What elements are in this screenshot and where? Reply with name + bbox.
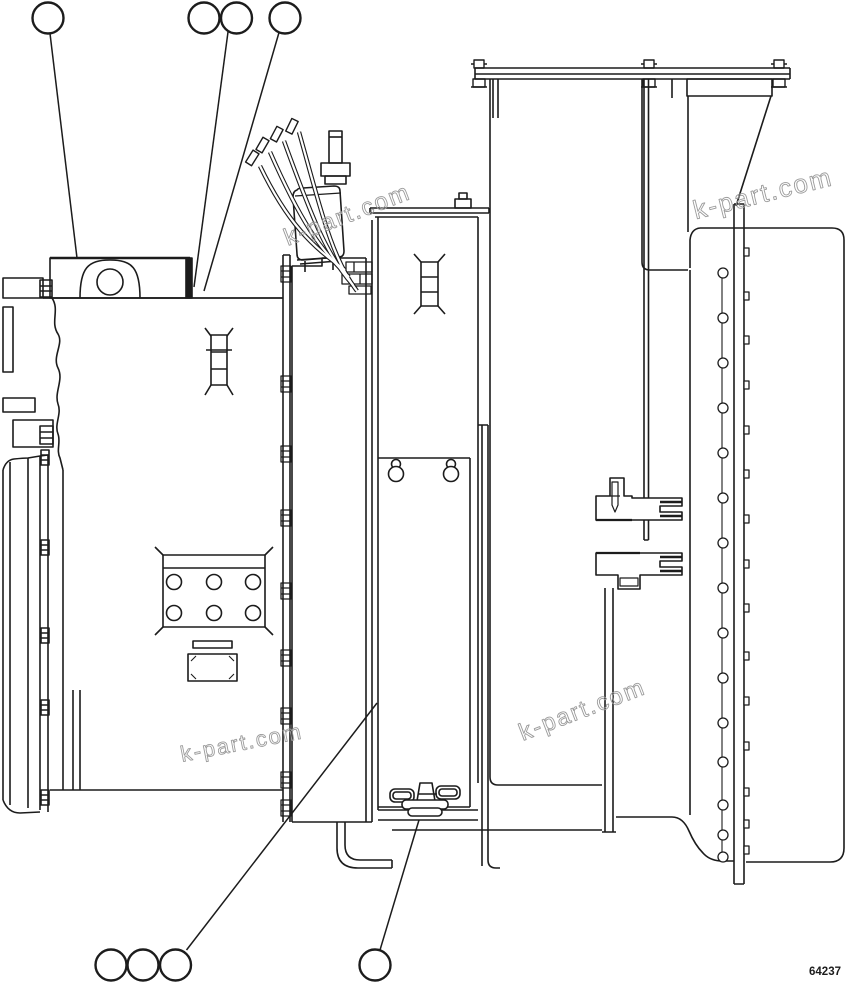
callout-balloon[interactable] — [189, 3, 220, 34]
drain-valve — [390, 783, 460, 816]
leader-line — [194, 32, 228, 287]
part-number: 64237 — [809, 966, 841, 978]
parts-diagram: k-part.com k-part.com k-part.com k-part.… — [0, 0, 845, 984]
center-panel-a — [292, 220, 392, 868]
watermarks: k-part.com k-part.com k-part.com k-part.… — [178, 161, 835, 766]
center-panel-b — [370, 193, 500, 868]
lifting-hole — [97, 269, 123, 295]
callout-balloon[interactable] — [160, 950, 191, 981]
strap-bracket — [205, 328, 233, 395]
rear-panel — [392, 79, 734, 861]
latch-bracket-upper — [596, 478, 682, 520]
callout-balloon[interactable] — [96, 950, 127, 981]
bolt-strip — [718, 204, 749, 884]
lifting-bracket — [50, 258, 192, 298]
top-mounting-rail — [471, 60, 790, 118]
latch-bracket-lower — [596, 553, 682, 589]
watermark: k-part.com — [690, 161, 836, 225]
callout-balloon[interactable] — [33, 3, 64, 34]
fan-shroud — [690, 204, 844, 884]
left-cooler-assembly — [43, 298, 283, 790]
keyhole-fasteners — [389, 460, 459, 482]
leader-line — [380, 820, 419, 950]
callout-balloon[interactable] — [128, 950, 159, 981]
watermark: k-part.com — [515, 673, 649, 746]
parts-diagram-canvas: k-part.com k-part.com k-part.com k-part.… — [0, 0, 845, 984]
callout-balloon[interactable] — [360, 950, 391, 981]
support-rod — [644, 79, 649, 540]
leader-line — [50, 34, 77, 259]
watermark: k-part.com — [178, 719, 304, 767]
left-side-brackets — [3, 278, 53, 813]
callout-balloon[interactable] — [270, 3, 301, 34]
strap-bracket-b — [414, 254, 445, 314]
mounting-foot — [337, 822, 392, 868]
callout-balloon[interactable] — [221, 3, 252, 34]
nameplate — [188, 641, 237, 681]
six-hole-plate — [155, 547, 273, 635]
leader-lines — [50, 32, 419, 950]
leader-line — [204, 33, 279, 292]
